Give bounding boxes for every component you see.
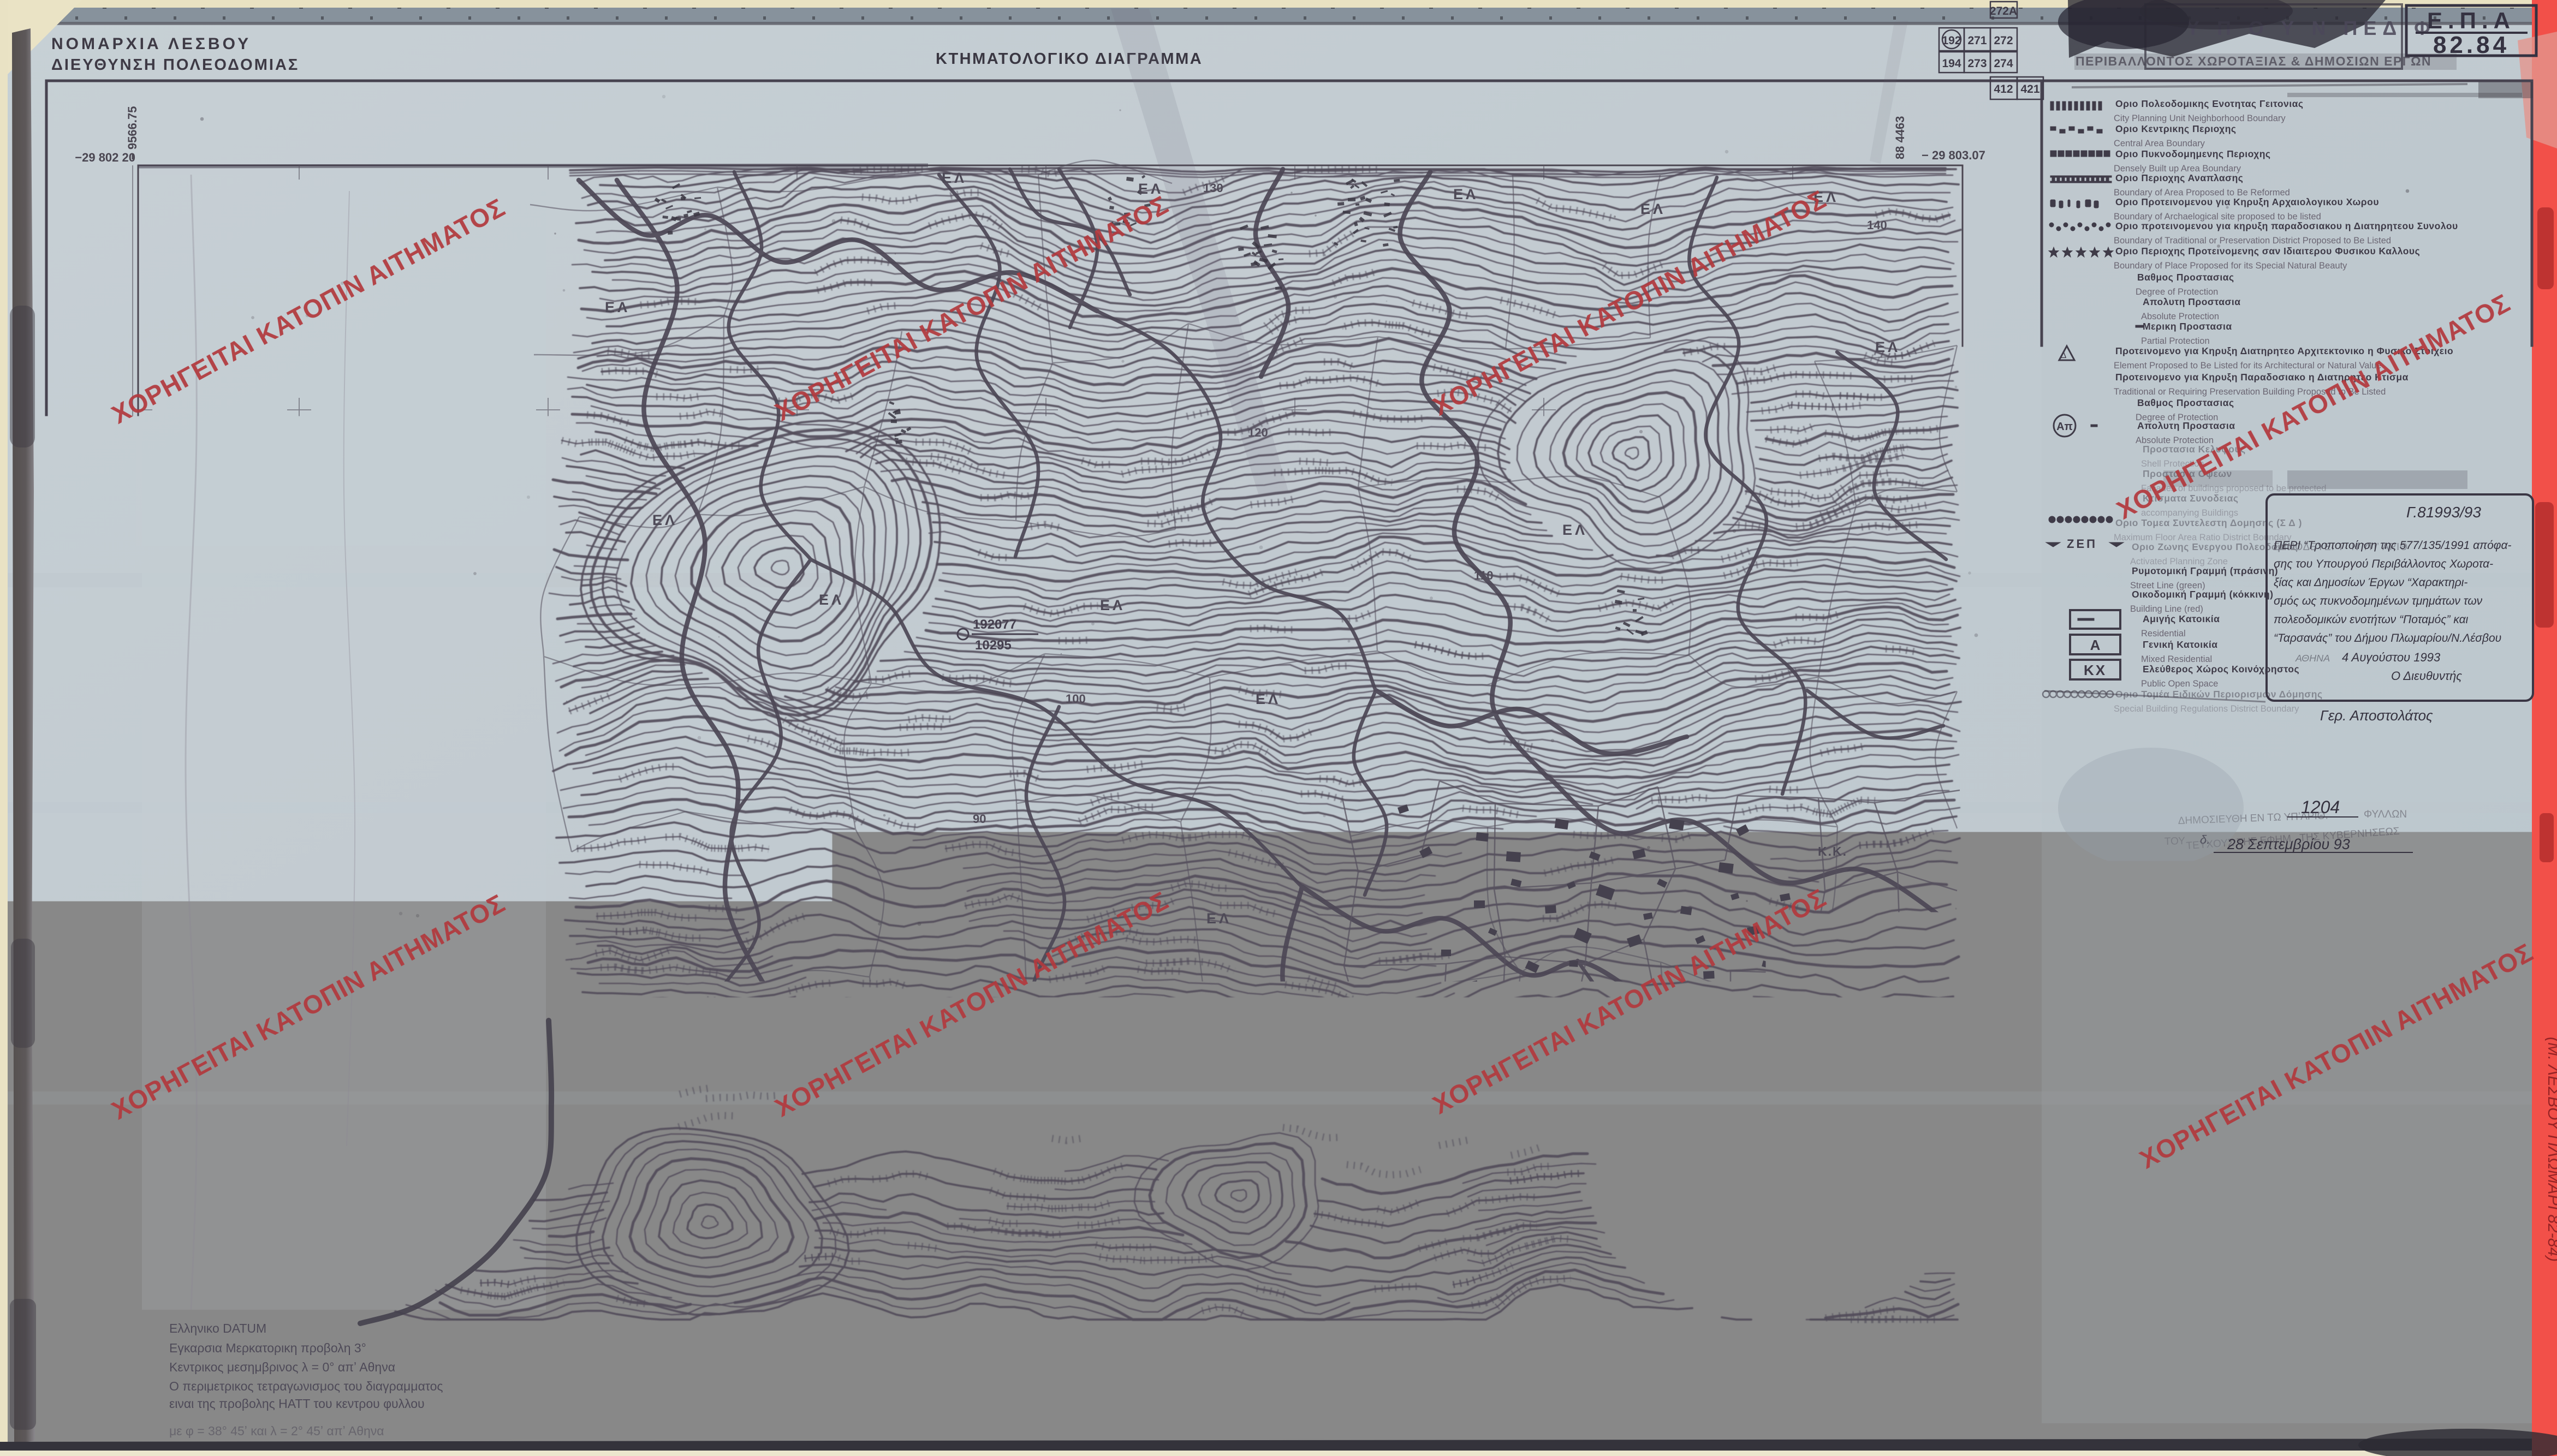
svg-text:ΝΟΜΑΡΧΙΑ ΛΕΣΒΟΥ: ΝΟΜΑΡΧΙΑ ΛΕΣΒΟΥ [51,35,251,53]
svg-text:ΕΛ: ΕΛ [605,299,630,315]
svg-text:ΣΠΥΡΟΣ ΤΣΟΥΚΗΣ-Συγκοινωνιολογο: ΣΠΥΡΟΣ ΤΣΟΥΚΗΣ-Συγκοινωνιολογος [2351,1124,2531,1136]
svg-text:09: 09 [1708,1324,1723,1340]
svg-text:ΜΥΡΩΝ ΜΥΡΙΔΗΣ-Αρχ. Γεωγραφος: ΜΥΡΩΝ ΜΥΡΙΔΗΣ-Αρχ. Γεωγραφος [2351,1068,2519,1080]
svg-text:ΕΛ: ΕΛ [1206,910,1232,927]
svg-text:ΕΛ: ΕΛ [652,512,677,528]
svg-text:ξίας και Δημοσίων Έργων “Χαρακ: ξίας και Δημοσίων Έργων “Χαρακτηρι- [2274,576,2467,589]
svg-text:ΚΛΙΜΑΚΑ: ΚΛΙΜΑΚΑ [2101,1383,2173,1395]
svg-text:Ρυμοτομική Γραμμή (πράσινη): Ρυμοτομική Γραμμή (πράσινη) [2132,565,2278,576]
svg-text:ΕΛ: ΕΛ [1640,201,1666,217]
svg-text:ΕΛ: ΕΛ [819,592,844,608]
svg-text:Κλιμακα 1:1000: Κλιμακα 1:1000 [969,1377,1099,1394]
svg-text:Θ ΘΕΟΦΥΛΑΚΤΙΔΗΣ-Μηχ ΗΛ Δικτυων: Θ ΘΕΟΦΥΛΑΚΤΙΔΗΣ-Μηχ ΗΛ Δικτυων [2351,1142,2532,1154]
svg-text:2-1: 2-1 [2146,1353,2177,1376]
svg-text:Οριο Περιοχης Αναπλασης: Οριο Περιοχης Αναπλασης [2115,172,2243,183]
svg-text:ΗΜΕΡΟΜΗΝΙΑ: ΗΜΕΡΟΜΗΝΙΑ [2245,962,2328,975]
svg-text:A: A [2090,637,2101,653]
svg-text:421: 421 [2243,1231,2264,1246]
svg-text:Β. Μουζος: Β. Μουζος [1872,1419,1933,1434]
svg-text:01: 01 [1542,1229,1553,1240]
svg-text:4 Αυγούστου 1993: 4 Αυγούστου 1993 [2342,651,2441,664]
svg-text:1204: 1204 [2301,797,2340,817]
svg-text:ειναι της προβολης ΗΑΤΤ του κε: ειναι της προβολης ΗΑΤΤ του κεντρου φυλλ… [169,1397,425,1411]
svg-text:ΤΖΟΥΛΙΑ ΘΕΟΔΩΡΑΚΗ-Αρχιτεκτων: ΤΖΟΥΛΙΑ ΘΕΟΔΩΡΑΚΗ-Αρχιτεκτων [2351,1087,2523,1099]
svg-text:Απολυτη Προστασια: Απολυτη Προστασια [2143,296,2241,307]
svg-text:88 44 14: 88 44 14 [1960,1263,1973,1310]
svg-text:Βαθμος Προστασιας: Βαθμος Προστασιας [2137,397,2234,408]
svg-text:ΠΕΡΙ “Τροποποίηση της 577/135/: ΠΕΡΙ “Τροποποίηση της 577/135/1991 απόφα… [2274,539,2511,552]
svg-text:Οριο Πυκνοδομημενης Περιοχης: Οριο Πυκνοδομημενης Περιοχης [2115,148,2271,159]
svg-text:Μεθοδος συνταξης: Μεθοδος συνταξης [1597,1365,1709,1379]
svg-text:271: 271 [2150,1113,2172,1127]
svg-text:272: 272 [1994,34,2013,47]
svg-text:88 4463: 88 4463 [1893,116,1907,159]
svg-text:Οριο Ζωνης Ενεργου Πολεοδομιας: Οριο Ζωνης Ενεργου Πολεοδομιας [2132,541,2298,552]
svg-text:40: 40 [1608,1261,1619,1272]
svg-text:Λ·: Λ· [2051,980,2062,992]
svg-text:ΧΩΡΟΣ: ΧΩΡΟΣ [1725,1084,1787,1099]
svg-text:Οριο Τομεα Συντελεστη Δομησης: Οριο Τομεα Συντελεστη Δομησης (Σ Δ ) [2115,517,2302,528]
svg-text:Δ: Δ [2061,351,2067,360]
svg-text:Special Building Regulations D: Special Building Regulations District Bo… [2114,704,2299,714]
svg-text:ΔΙΑΝΟΜΗ ΠΙΝΑΚΙΔΩΝ: ΔΙΑΝΟΜΗ ΠΙΝΑΚΙΔΩΝ [2103,1032,2318,1047]
svg-text:38: 38 [1579,1259,1590,1270]
svg-text:ΚΑΤΕΡΙΝΑ ΚΟΤΣΑΛΗ-Αρχ. Γεωγραφο: ΚΑΤΕΡΙΝΑ ΚΟΤΣΑΛΗ-Αρχ. Γεωγραφος [2351,1049,2537,1061]
svg-text:32: 32 [1369,1252,1380,1263]
svg-text:ΕΛ: ΕΛ [1100,597,1125,613]
svg-text:Ε.Π.Α: Ε.Π.Α [2427,8,2516,33]
svg-text:ΕΛ: ΕΛ [907,974,932,990]
svg-text:ΕΛ: ΕΛ [1349,1014,1375,1030]
svg-text:·84: ·84 [1796,1401,1815,1416]
svg-text:Boundary of Traditional or Pre: Boundary of Traditional or Preservation … [2114,236,2391,246]
svg-text:ΕΛ: ΕΛ [1875,339,1900,355]
svg-text:ΝΟΜΟΣ: ΝΟΜΟΣ [2249,1420,2315,1436]
svg-text:Γερ. Αποστολάτος: Γερ. Αποστολάτος [2320,707,2433,724]
svg-text:272A: 272A [1990,5,2017,17]
svg-text:ΕΛ: ΕΛ [1256,691,1281,707]
svg-text:274: 274 [2196,1171,2217,1185]
svg-text:City Planning Unit Neighborhoo: City Planning Unit Neighborhood Boundary [2114,114,2286,123]
svg-text:Ελληνικο DATUM: Ελληνικο DATUM [169,1321,266,1335]
svg-text:Οριο προτεινομενου για κηρυξη: Οριο προτεινομενου για κηρυξη παραδοσιακ… [2115,220,2458,232]
svg-text:Partial Protection: Partial Protection [2141,336,2210,346]
svg-text:75.60: 75.60 [1120,1074,1150,1088]
svg-text:Central Area Boundary: Central Area Boundary [2114,139,2205,148]
svg-text:(Μ. ΛΕΣΒΟΥ ΠΛΩΜΑΡΙ 82-84): (Μ. ΛΕΣΒΟΥ ΠΛΩΜΑΡΙ 82-84) [2544,1037,2557,1262]
svg-text:Οικοδομική Γραμμή (κόκκινη): Οικοδομική Γραμμή (κόκκινη) [2132,589,2273,600]
svg-text:412: 412 [1994,83,2013,96]
svg-text:10295: 10295 [975,638,1012,653]
svg-text:Γενική Κατοικία: Γενική Κατοικία [2143,639,2217,650]
svg-text:81.50: 81.50 [884,1220,914,1233]
svg-text:σμός ως πυκνοδομημένων τμημάτω: σμός ως πυκνοδομημένων τμημάτων των [2274,595,2483,607]
svg-text:194: 194 [2105,1171,2127,1185]
svg-text:ΧΑΡΤΗΣ: ΧΑΡΤΗΣ [2074,1332,2130,1342]
svg-text:ΑΘΗΝΑ: ΑΘΗΝΑ [2295,653,2330,664]
svg-text:82.84: 82.84 [2433,32,2510,58]
svg-text:37: 37 [1581,1090,1592,1101]
svg-text:1: 1000: 1: 1000 [2108,1399,2162,1413]
svg-text:σης του Υπουργού Περιβάλλοντος: σης του Υπουργού Περιβάλλοντος Χωροτα- [2274,558,2493,570]
svg-text:επιγεια: επιγεια [1882,1366,1922,1379]
svg-text:ΕΛ: ΕΛ [1453,186,1478,202]
svg-text:− 9567 30: − 9567 30 [120,1276,134,1329]
svg-text:ΕΛ: ΕΛ [1562,522,1587,538]
svg-text:ΡΥΜΟΤΟΜΙΚΟ ΣΧΕΔΙΟ: ΡΥΜΟΤΟΜΙΚΟ ΣΧΕΔΙΟ [2260,1345,2510,1368]
svg-text:με φ = 38° 45ʼ και λ =: με φ = 38° 45ʼ και λ = 2° 45ʼ απʼ Αθηνα [169,1424,384,1438]
svg-text:ΦΥΛΛΩΝ: ΦΥΛΛΩΝ [2364,809,2407,820]
svg-text:∷: ∷ [1899,1384,1906,1396]
svg-text:KX: KX [2084,662,2107,678]
svg-text:74.90: 74.90 [1095,1262,1125,1275]
svg-text:110: 110 [1474,569,1494,582]
svg-text:ΠΛΑΤΕΙΑ: ΠΛΑΤΕΙΑ [1419,1286,1501,1301]
svg-text:Γ.81993/93: Γ.81993/93 [2406,504,2481,521]
svg-text:ΒΡΜ ΖΑΜΤΡΑΚΗΣ- Υδραυλικος: ΒΡΜ ΖΑΜΤΡΑΚΗΣ- Υδραυλικος [2351,1161,2502,1173]
svg-text:130: 130 [1203,181,1223,195]
svg-text:“Ταρσανάς” του Δήμου Πλωμαρίου: “Ταρσανάς” του Δήμου Πλωμαρίου/Ν.Λέσβου [2274,632,2501,645]
svg-text:πολεοδομικών ενοτήτων “Ποταμός: πολεοδομικών ενοτήτων “Ποταμός” και [2274,613,2469,626]
svg-text:ΜΑΙΟΣ 1984: ΜΑΙΟΣ 1984 [2074,1419,2169,1434]
svg-text:Εγκαρσια Μερκατορικη προβολη 3: Εγκαρσια Μερκατορικη προβολη 3° [169,1341,366,1355]
svg-text:271: 271 [1967,34,1987,47]
svg-text:ΠΛΑΤΕΙΑ: ΠΛΑΤΕΙΑ [1512,887,1594,903]
svg-text:Degree of Protection: Degree of Protection [2136,287,2218,297]
svg-text:274: 274 [1994,57,2013,70]
svg-text:140: 140 [1867,218,1887,232]
svg-text:Building Line (red): Building Line (red) [2130,604,2203,614]
svg-text:Κτηματολογικα στοιχεια: Κτηματολογικα στοιχεια [1747,1384,1871,1396]
svg-text:Οριο Κεντρικης Περιοχης: Οριο Κεντρικης Περιοχης [2115,123,2237,134]
svg-text:Element Proposed to Be Listed: Element Proposed to Be Listed for its Ar… [2114,361,2381,371]
svg-text:ΠΛΩΜΑΡΙΟΝ: ΠΛΩΜΑΡΙΟΝ [2303,1391,2428,1407]
svg-text:05: 05 [1657,1166,1668,1177]
svg-text:ΕΛ: ΕΛ [1797,1061,1822,1077]
svg-text:Μα˟ος ·85: Μα˟ος ·85 [1774,1419,1833,1434]
svg-text:100: 100 [1066,692,1086,706]
svg-text:Ο Διευθυντής: Ο Διευθυντής [2391,669,2462,683]
svg-text:Αμιγής Κατοικία: Αμιγής Κατοικία [2143,613,2220,624]
svg-text:70: 70 [1054,1196,1067,1210]
svg-text:ο Μελετητης: ο Μελετητης [1872,1402,1940,1415]
svg-text:Public Open Space: Public Open Space [2141,679,2218,689]
svg-text:ΓΙΩΡΓΟΣ ΔΗΜΗΤΡΙΟΥ-Τοπογραφος: ΓΙΩΡΓΟΣ ΔΗΜΗΤΡΙΟΥ-Τοπογραφος [2351,1105,2524,1117]
svg-text:ΔΙΕΥΘΥΝΣΗ ΠΟΛΕΟΔΟΜΙΑΣ: ΔΙΕΥΘΥΝΣΗ ΠΟΛΕΟΔΟΜΙΑΣ [51,56,299,74]
svg-text:Ν Ο Μ Ο Σ: Ν Ο Μ Ο Σ [1607,1324,1670,1339]
svg-text:Βαθμος Προστασιας: Βαθμος Προστασιας [2137,272,2234,283]
svg-text:80: 80 [1211,1281,1224,1295]
svg-text:Οριο Τομέα Ειδικών Περιορισμών: Οριο Τομέα Ειδικών Περιορισμών Δόμησης [2115,689,2323,700]
svg-text:Absolute Protection: Absolute Protection [2141,312,2219,321]
svg-text:Χρονος συνταξης: Χρονος συνταξης [1597,1419,1701,1434]
svg-text:273: 273 [2150,1171,2172,1185]
svg-text:ΔΗΜΟΣ ή ΚΟΙΝ.: ΔΗΜΟΣ ή ΚΟΙΝ. [1591,1345,1686,1359]
svg-text:ΕΛ: ΕΛ [1739,894,1764,910]
svg-text:ΠΟΛΕΟΔΟΜΙΚΗ ΟΡΓΑΝΩΣΗ - ΛΕΙΤ: ΠΟΛΕΟΔΟΜΙΚΗ ΟΡΓΑΝΩΣΗ - ΛΕΙΤΟΥΡΓΙΕΣ [2046,1305,2453,1324]
svg-text:Residential: Residential [2141,629,2186,639]
svg-text:77.80: 77.80 [827,1118,857,1131]
svg-text:412: 412 [2196,1231,2217,1246]
svg-text:ΚΕΝΤΡΟΝ Φ.Χ. 1:100 000: ΚΕΝΤΡΟΝ Φ.Χ. 1:100 000 [2048,962,2192,975]
svg-text:Οριο Πολεοδομικης Ενοτητας Γ: Οριο Πολεοδομικης Ενοτητας Γειτονιας [2115,98,2304,109]
svg-text:Κ.Κ.: Κ.Κ. [1818,844,1847,858]
svg-text:Mixed Residential: Mixed Residential [2141,654,2212,664]
svg-text:28 Σεπτεμβρίου 93: 28 Σεπτεμβρίου 93 [2227,836,2350,852]
svg-text:2° 15ʼ απʼ Αθηνα: 2° 15ʼ απʼ Αθηνα [2064,996,2158,1010]
svg-text:− 30 265 67: − 30 265 67 [1966,1318,2024,1330]
svg-text:ΕΛ: ΕΛ [776,1254,801,1270]
svg-text:34: 34 [1702,1166,1712,1177]
svg-text:Κεντρικος μεσημβρινος λ = 0°: Κεντρικος μεσημβρινος λ = 0° απʼ Αθηνα [169,1360,395,1374]
svg-text:ΠΟΛΕΟΔΟΜΙΚΗ ΜΕΛΕΤΗ - ΕΠΕΚΤΑΣΗ: ΠΟΛΕΟΔΟΜΙΚΗ ΜΕΛΕΤΗ - ΕΠΕΚΤΑΣΗ [2048,932,2540,953]
svg-text:77.10: 77.10 [953,947,983,961]
svg-text:Boundary of Place Proposed for: Boundary of Place Proposed for its Speci… [2114,261,2347,271]
svg-text:ΛΕΣΒΟΥ: ΛΕΣΒΟΥ [1812,1324,1868,1339]
svg-text:ΕΛ: ΕΛ [942,170,967,186]
svg-text:ΑΘΛΟΠΑΙΔΙΩΝ: ΑΘΛΟΠΑΙΔΙΩΝ [1695,1106,1822,1121]
svg-text:ΖΕΠ: ΖΕΠ [2067,537,2097,551]
svg-text:accompanying Buildings: accompanying Buildings [2141,508,2238,518]
svg-text:Τοπογραφικα στοιχεια: Τοπογραφικα στοιχεια [1747,1366,1863,1378]
svg-text:Απ: Απ [2056,421,2073,433]
svg-text:ΠΛΩΜΑΡΙΟΥ: ΠΛΩΜΑΡΙΟΥ [1801,1344,1885,1359]
svg-text:192077: 192077 [973,617,1016,632]
svg-text:Μερικη Προστασια: Μερικη Προστασια [2143,321,2232,332]
svg-text:90: 90 [973,812,986,826]
svg-text:24: 24 [1445,1183,1456,1194]
svg-text:03: 03 [1621,1194,1632,1205]
svg-text:Φωτοληψια: Φωτοληψια [1597,1400,1666,1414]
svg-text:Ο περιμετρικος τετραγωνισμος τ: Ο περιμετρικος τετραγωνισμος του διαγραμ… [169,1379,443,1393]
svg-text:421: 421 [2020,83,2039,96]
svg-text:273: 273 [1967,57,1987,70]
svg-text:Απολυτη Προστασια: Απολυτη Προστασια [2137,420,2235,431]
svg-text:Φ· 39° 15ʼ: Φ· 39° 15ʼ [2056,980,2111,993]
svg-text:007: 007 [1699,1345,1723,1361]
svg-text:Κ.Χ: Κ.Χ [1475,1187,1499,1201]
svg-text:Ελεύθερος Χώρος Κοινόχρηστος: Ελεύθερος Χώρος Κοινόχρηστος [2143,664,2299,675]
svg-text:− 9566.75: − 9566.75 [126,106,139,160]
svg-text:Οριο Περιοχης Προτεινομενης σα: Οριο Περιοχης Προτεινομενης σαν Ιδιαιτερ… [2115,246,2420,256]
svg-text:194: 194 [1942,57,1961,70]
svg-text:Οριο Προτεινομενου για Κηρυξη: Οριο Προτεινομενου για Κηρυξη Αρχαιολογι… [2115,196,2379,208]
svg-text:− 29 803.07: − 29 803.07 [1922,148,1985,162]
